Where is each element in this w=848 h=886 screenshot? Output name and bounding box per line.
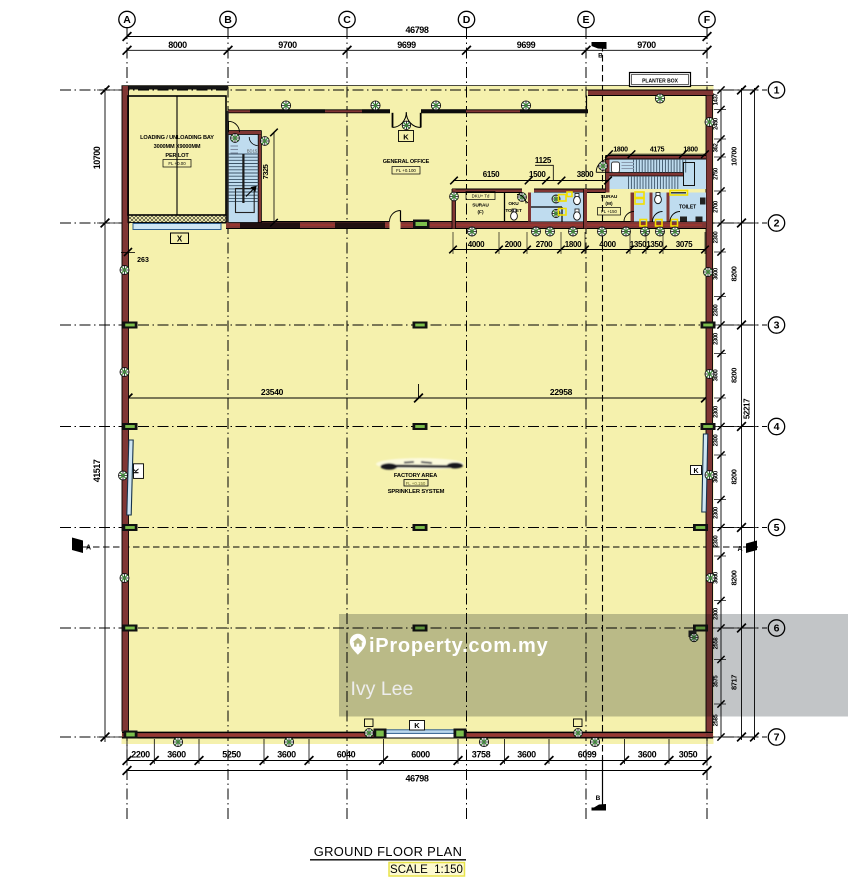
svg-text:3600: 3600 — [714, 369, 720, 382]
svg-text:9700: 9700 — [278, 40, 297, 50]
svg-text:9699: 9699 — [517, 40, 536, 50]
svg-text:A: A — [737, 546, 742, 553]
svg-text:Ivy Lee: Ivy Lee — [351, 678, 414, 700]
svg-text:X: X — [177, 235, 183, 244]
svg-text:OKU: OKU — [508, 201, 519, 207]
svg-text:2: 2 — [774, 218, 780, 230]
svg-text:2000: 2000 — [505, 240, 522, 249]
svg-text:4000: 4000 — [468, 240, 485, 249]
svg-text:3600: 3600 — [714, 267, 720, 280]
svg-text:SPRINKLER SYSTEM: SPRINKLER SYSTEM — [388, 489, 445, 495]
svg-text:3: 3 — [774, 320, 780, 332]
svg-text:FL +0.100: FL +0.100 — [396, 168, 416, 173]
svg-text:D: D — [463, 14, 471, 26]
svg-text:2300: 2300 — [714, 506, 720, 519]
svg-text:8200: 8200 — [730, 469, 739, 484]
svg-text:9700: 9700 — [637, 40, 656, 50]
svg-text:6099: 6099 — [578, 750, 597, 760]
svg-text:8200: 8200 — [730, 266, 739, 281]
svg-text:8000: 8000 — [168, 40, 187, 50]
svg-text:(M): (M) — [605, 201, 613, 207]
svg-text:K: K — [414, 721, 420, 730]
svg-text:3075: 3075 — [676, 240, 693, 249]
svg-text:PLANTER BOX: PLANTER BOX — [642, 78, 679, 84]
svg-text:2300: 2300 — [714, 434, 720, 447]
svg-text:2300: 2300 — [714, 405, 720, 418]
svg-text:DKU+ Td: DKU+ Td — [472, 194, 490, 199]
svg-text:A: A — [86, 545, 91, 552]
svg-text:2300: 2300 — [714, 231, 720, 244]
svg-text:3050: 3050 — [679, 750, 698, 760]
svg-text:1500: 1500 — [529, 170, 546, 179]
svg-text:4: 4 — [774, 421, 780, 433]
svg-text:TOILET: TOILET — [679, 205, 696, 211]
svg-text:4175: 4175 — [650, 147, 665, 154]
svg-text:2700: 2700 — [536, 240, 553, 249]
svg-text:6150: 6150 — [483, 170, 500, 179]
svg-text:LOADING / UNLOADING BAY: LOADING / UNLOADING BAY — [140, 135, 214, 141]
svg-text:C: C — [343, 14, 351, 26]
svg-text:2750: 2750 — [714, 167, 720, 180]
svg-text:1350: 1350 — [646, 240, 663, 249]
svg-text:1125: 1125 — [535, 156, 552, 165]
svg-text:7325: 7325 — [261, 164, 270, 179]
svg-text:3000MM X9000MM: 3000MM X9000MM — [154, 144, 201, 150]
svg-text:2700: 2700 — [714, 200, 720, 213]
svg-text:41517: 41517 — [92, 459, 102, 482]
svg-text:7: 7 — [774, 732, 780, 744]
svg-text:B: B — [596, 795, 601, 802]
svg-text:8200: 8200 — [730, 368, 739, 383]
svg-text:B: B — [598, 53, 603, 60]
svg-text:10700: 10700 — [92, 146, 102, 169]
svg-text:2200: 2200 — [131, 750, 150, 760]
svg-text:8200: 8200 — [730, 570, 739, 585]
svg-text:9699: 9699 — [397, 40, 416, 50]
svg-text:2300: 2300 — [714, 332, 720, 345]
svg-text:1437: 1437 — [714, 93, 720, 106]
svg-text:1350: 1350 — [630, 240, 647, 249]
svg-text:F: F — [704, 14, 711, 26]
svg-text:6040: 6040 — [337, 750, 356, 760]
svg-text:22958: 22958 — [550, 387, 573, 397]
svg-text:E: E — [582, 14, 589, 26]
svg-text:2300: 2300 — [714, 304, 720, 317]
svg-text:10700: 10700 — [730, 147, 739, 166]
svg-text:1800: 1800 — [613, 147, 628, 154]
svg-text:5: 5 — [774, 522, 780, 534]
svg-text:GENERAL OFFICE: GENERAL OFFICE — [383, 159, 430, 165]
svg-text:SURAU: SURAU — [601, 194, 618, 200]
svg-text:3600: 3600 — [638, 750, 657, 760]
svg-text:46798: 46798 — [405, 774, 428, 784]
svg-text:1: 1 — [774, 85, 780, 97]
svg-text:3800: 3800 — [577, 170, 594, 179]
svg-text:(F): (F) — [477, 210, 484, 216]
svg-text:K: K — [403, 133, 409, 142]
svg-text:5250: 5250 — [222, 750, 241, 760]
svg-text:1800: 1800 — [565, 240, 582, 249]
svg-text:BD15: BD15 — [247, 149, 258, 154]
svg-text:FACTORY AREA: FACTORY AREA — [394, 473, 438, 479]
svg-text:iProperty.com.my: iProperty.com.my — [369, 635, 549, 657]
svg-text:3758: 3758 — [472, 750, 491, 760]
svg-text:FL +0.150: FL +0.150 — [406, 481, 426, 486]
svg-text:4000: 4000 — [599, 240, 616, 249]
svg-text:SCALE 1:150: SCALE 1:150 — [390, 864, 463, 876]
svg-text:23540: 23540 — [261, 387, 284, 397]
svg-text:1800: 1800 — [683, 147, 698, 154]
svg-text:PER LOT: PER LOT — [165, 153, 189, 159]
svg-text:3600: 3600 — [517, 750, 536, 760]
svg-text:K: K — [693, 468, 698, 475]
svg-text:GROUND FLOOR PLAN: GROUND FLOOR PLAN — [314, 844, 462, 859]
svg-text:3600: 3600 — [714, 470, 720, 483]
svg-text:A: A — [123, 14, 131, 26]
svg-text:52217: 52217 — [743, 398, 752, 419]
svg-text:2300: 2300 — [714, 535, 720, 548]
svg-text:TOILET: TOILET — [505, 208, 522, 214]
svg-text:SURAU: SURAU — [472, 203, 489, 209]
svg-text:6000: 6000 — [411, 750, 430, 760]
svg-text:3600: 3600 — [167, 750, 186, 760]
svg-text:2450: 2450 — [714, 117, 720, 130]
svg-text:B: B — [224, 14, 232, 26]
svg-text:FL +150: FL +150 — [601, 209, 617, 214]
svg-text:362: 362 — [714, 143, 720, 153]
svg-text:46798: 46798 — [405, 25, 428, 35]
svg-text:K: K — [132, 468, 141, 474]
svg-text:3600: 3600 — [277, 750, 296, 760]
svg-text:263: 263 — [137, 257, 149, 264]
svg-text:FL +0.00: FL +0.00 — [168, 161, 186, 166]
